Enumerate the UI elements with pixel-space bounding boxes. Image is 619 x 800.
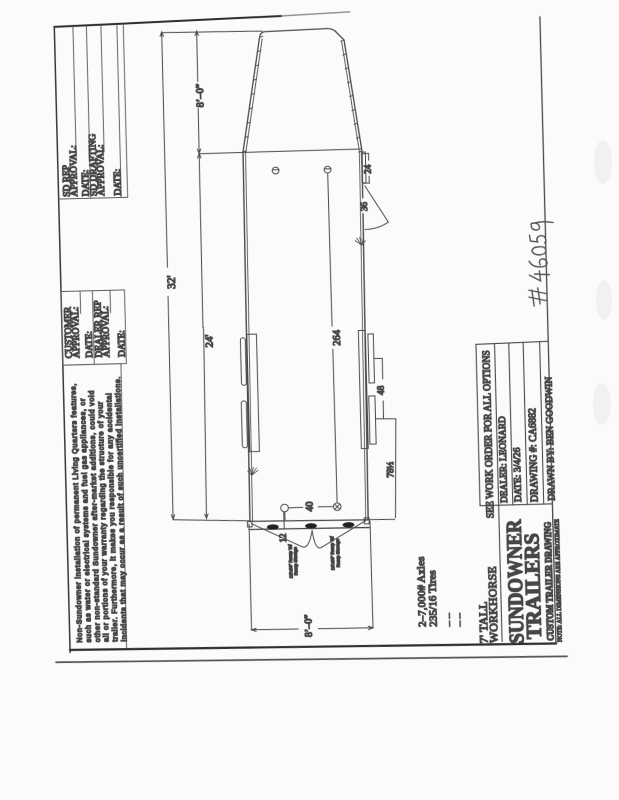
svg-text:24': 24' <box>203 334 215 347</box>
svg-text:235/16 Tires: 235/16 Tires <box>426 570 439 627</box>
svg-text:WORKHORSE: WORKHORSE <box>485 566 501 643</box>
svg-text:264: 264 <box>332 329 343 346</box>
svg-text:TRAILERS: TRAILERS <box>519 533 546 640</box>
svg-text:48: 48 <box>377 385 387 395</box>
svg-text:APPROVAL:: APPROVAL: <box>71 306 82 358</box>
svg-text:APPROVAL:: APPROVAL: <box>69 145 80 197</box>
svg-text:24: 24 <box>362 164 372 174</box>
svg-text:APPROVAL:: APPROVAL: <box>101 306 112 358</box>
svg-text:78½: 78½ <box>385 462 395 478</box>
svg-text:32': 32' <box>166 275 178 289</box>
svg-text:DATE:: DATE: <box>113 169 124 196</box>
svg-text:Ramp Storage: Ramp Storage <box>293 546 299 575</box>
svg-text:DATE:: DATE: <box>117 330 128 357</box>
svg-text:Ramp Storage: Ramp Storage <box>335 538 341 567</box>
svg-text:36: 36 <box>359 201 369 211</box>
svg-text:8’–0”: 8’–0” <box>195 83 207 108</box>
svg-text:40: 40 <box>304 501 315 511</box>
svg-text:DATE: 3/4/26: DATE: 3/4/26 <box>512 447 524 502</box>
svg-text:8’–0”: 8’–0” <box>303 614 315 637</box>
svg-text:APPROVAL:: APPROVAL: <box>96 144 107 196</box>
